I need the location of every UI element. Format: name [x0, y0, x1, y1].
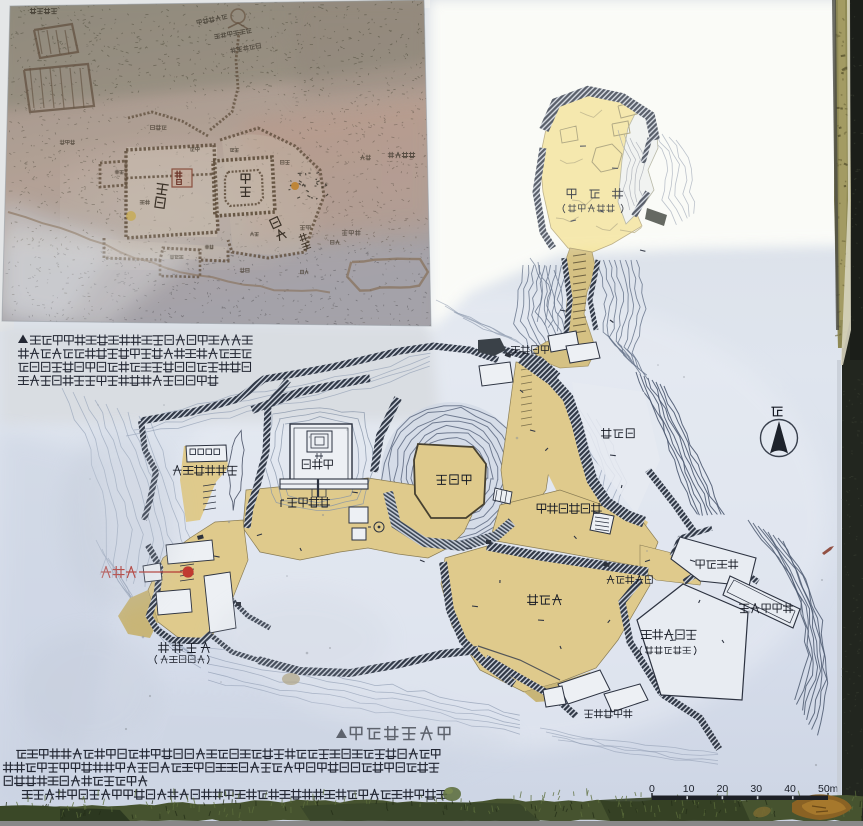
svg-text:20: 20	[717, 783, 729, 795]
svg-text:10: 10	[683, 783, 695, 795]
svg-text:30: 30	[750, 783, 762, 795]
svg-text:40: 40	[784, 783, 796, 795]
